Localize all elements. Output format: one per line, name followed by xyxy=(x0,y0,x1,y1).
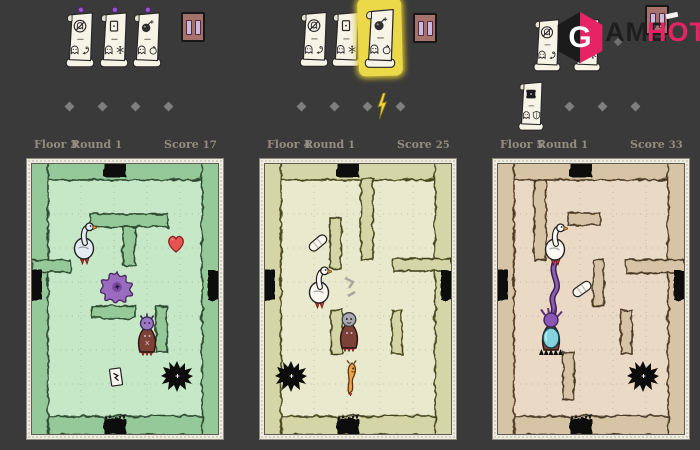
run-panel-floor-4: Floor4 Round1 Score25 xyxy=(259,0,455,450)
lightning-bolt-icon xyxy=(376,93,388,119)
dungeon-map-frame xyxy=(26,158,224,440)
progress-diamond xyxy=(598,102,608,112)
scroll-background xyxy=(300,12,327,66)
run-panel-floor-3: Floor3 Round1 Score17 xyxy=(26,0,222,450)
pause-icon xyxy=(427,21,433,36)
scroll-background xyxy=(66,13,93,67)
progress-diamond xyxy=(98,102,108,112)
round-stat: Round1 xyxy=(304,138,355,151)
round-stat: Round1 xyxy=(537,138,588,151)
logo-monogram: G xyxy=(568,21,591,54)
dungeon-map-frame xyxy=(492,158,690,440)
scroll-background xyxy=(133,13,160,67)
progress-diamond xyxy=(65,102,75,112)
logo-text-pink: HOT xyxy=(647,17,700,48)
pause-icon xyxy=(418,21,424,36)
score-stat: Score17 xyxy=(164,138,217,151)
pause-icon xyxy=(186,20,192,35)
game-screen: Floor3 Round1 Score17 xyxy=(0,0,700,450)
progress-diamond xyxy=(565,102,575,112)
pause-button[interactable] xyxy=(181,12,205,42)
pit-icon xyxy=(526,90,535,98)
dungeon-map-floor-3[interactable] xyxy=(32,164,218,434)
score-stat: Score33 xyxy=(630,138,683,151)
progress-diamond xyxy=(131,102,141,112)
card-pickup xyxy=(109,368,122,386)
score-stat: Score25 xyxy=(397,138,450,151)
action-card-spell[interactable] xyxy=(99,4,129,73)
robed-monster xyxy=(341,313,358,352)
scroll-background xyxy=(365,10,394,68)
run-panel-floor-5: Floor5 Round1 Score33 xyxy=(492,0,688,450)
action-card-bomb[interactable] xyxy=(132,4,162,73)
robed-monster xyxy=(139,314,156,356)
round-stat: Round1 xyxy=(71,138,122,151)
progress-diamond xyxy=(363,102,373,112)
dungeon-map-floor-5[interactable] xyxy=(498,164,684,434)
scroll-background xyxy=(519,82,543,130)
floor xyxy=(265,164,451,434)
action-card-no-ghost[interactable] xyxy=(299,5,329,71)
progress-diamond xyxy=(631,102,641,112)
progress-diamond xyxy=(297,102,307,112)
dungeon-map-frame xyxy=(259,158,457,440)
floor xyxy=(498,164,684,434)
progress-diamond xyxy=(164,102,174,112)
action-card-bomb-selected[interactable] xyxy=(363,2,397,72)
action-card-pit[interactable] xyxy=(515,76,547,134)
pause-button[interactable] xyxy=(413,13,437,43)
progress-diamond xyxy=(396,102,406,112)
action-card-no-ghost[interactable] xyxy=(65,4,95,73)
pause-icon xyxy=(195,20,201,35)
logo-hexagon: G xyxy=(553,10,607,64)
progress-diamond xyxy=(330,102,340,112)
dungeon-map-floor-4[interactable] xyxy=(265,164,451,434)
